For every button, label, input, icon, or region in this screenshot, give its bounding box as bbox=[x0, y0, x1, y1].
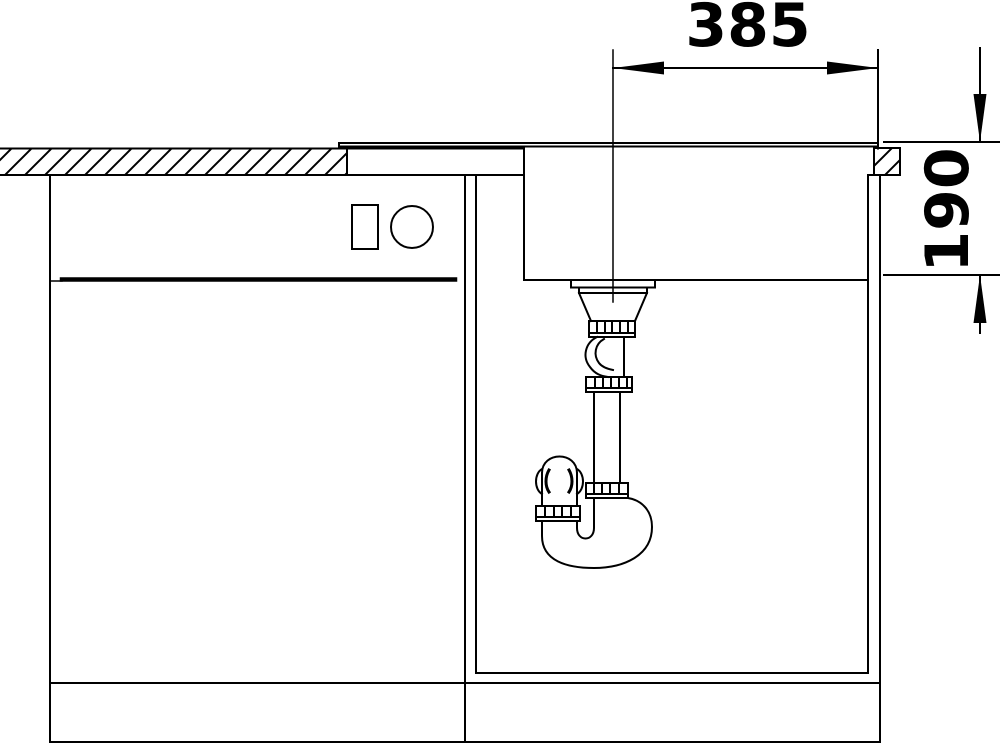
pipe-union-nut-lower bbox=[586, 483, 628, 498]
trap-riser-nut bbox=[536, 506, 580, 521]
arrowhead-left bbox=[613, 62, 664, 75]
trap-union-detail bbox=[546, 470, 572, 492]
countertop-hatch-right bbox=[874, 148, 900, 175]
dim-width-label: 385 bbox=[685, 0, 810, 61]
dim-depth-label: 190 bbox=[913, 147, 983, 272]
sink-bowl bbox=[524, 147, 868, 281]
strainer-nut bbox=[589, 321, 635, 337]
dimension-width: 385 bbox=[613, 0, 878, 141]
cabinet-symbol-circle bbox=[391, 206, 433, 248]
countertop-hatch-left bbox=[0, 148, 347, 175]
left-cabinet bbox=[50, 175, 465, 742]
pipe-union-nut-upper bbox=[586, 377, 632, 392]
sink-unit bbox=[339, 143, 878, 280]
arrowhead-right bbox=[827, 62, 878, 75]
cabinet-symbol-rect bbox=[352, 205, 378, 249]
trap-union-bumps bbox=[536, 469, 583, 494]
tailpipe bbox=[594, 392, 620, 483]
drain-assembly bbox=[571, 280, 655, 498]
right-cabinet bbox=[476, 175, 880, 742]
countertop bbox=[0, 148, 900, 175]
sink-installation-drawing: 385 190 bbox=[0, 0, 1000, 744]
right-cabinet-inner bbox=[476, 175, 868, 673]
drain-elbow bbox=[586, 337, 613, 377]
arrowhead-up bbox=[974, 275, 987, 323]
dimension-depth: 190 bbox=[884, 48, 1000, 333]
trap-u-bend bbox=[542, 498, 652, 568]
arrowhead-down bbox=[974, 94, 987, 142]
